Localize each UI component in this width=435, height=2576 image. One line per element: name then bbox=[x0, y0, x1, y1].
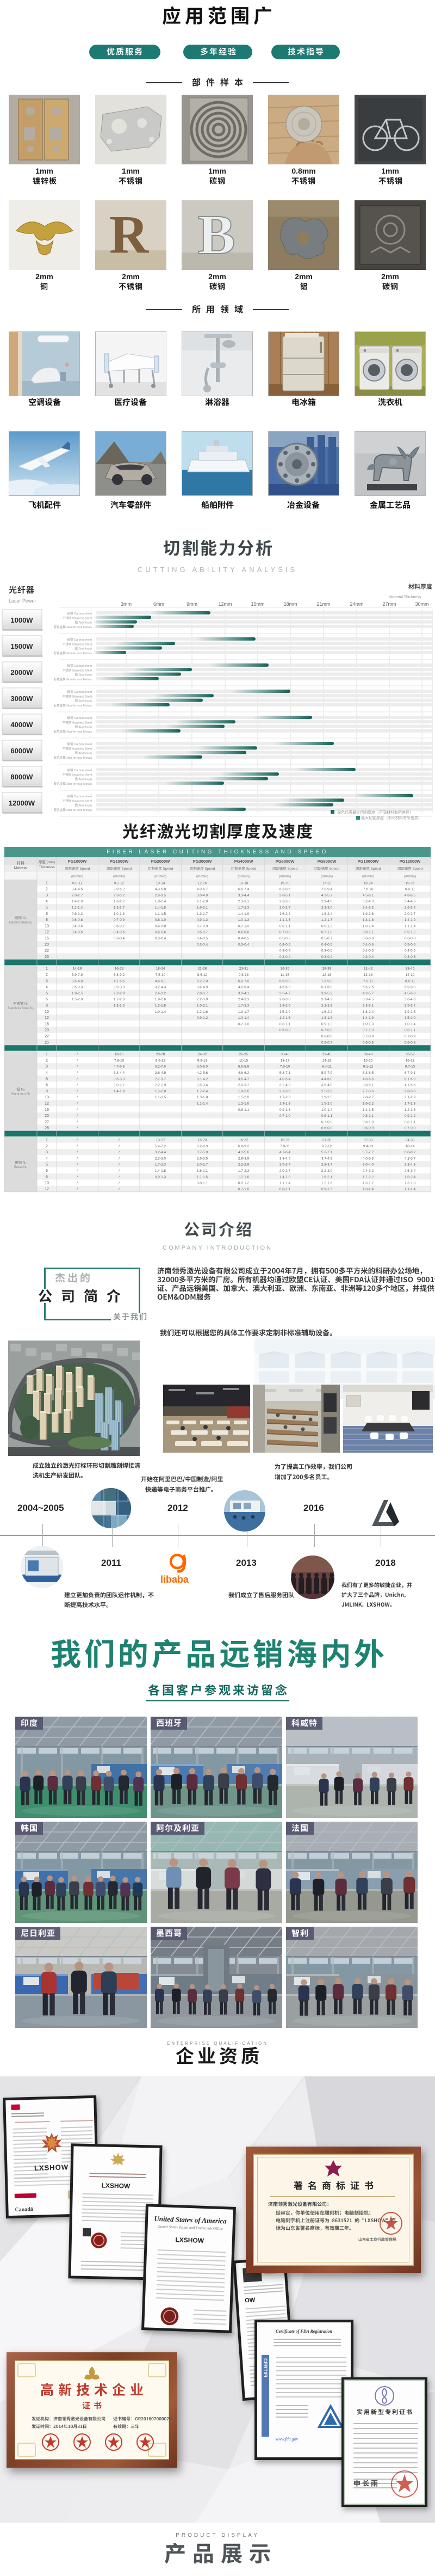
svg-text:PG4000W: PG4000W bbox=[234, 859, 254, 864]
svg-text:2.6-3.4: 2.6-3.4 bbox=[405, 906, 416, 910]
svg-text:1.0-1.3: 1.0-1.3 bbox=[363, 1022, 374, 1026]
svg-text:4.3-5.8: 4.3-5.8 bbox=[155, 888, 166, 892]
svg-text:不锈钢 Stainless Steel: 不锈钢 Stainless Steel bbox=[63, 746, 92, 751]
svg-text:2.9-3.9: 2.9-3.9 bbox=[114, 986, 125, 989]
svg-text:2.3-3.1: 2.3-3.1 bbox=[363, 1004, 374, 1008]
svg-text:2.8-3.7: 2.8-3.7 bbox=[197, 992, 208, 995]
svg-text:不锈钢 Stainless Steel: 不锈钢 Stainless Steel bbox=[63, 720, 92, 724]
svg-text:9.7-13: 9.7-13 bbox=[405, 1065, 415, 1069]
svg-text:8.6-12: 8.6-12 bbox=[156, 1059, 166, 1062]
svg-text:7.6-10: 7.6-10 bbox=[280, 1065, 290, 1069]
svg-text:2.5-3.4: 2.5-3.4 bbox=[405, 1169, 416, 1173]
svg-text:8000W: 8000W bbox=[10, 773, 33, 781]
svg-text:/: / bbox=[119, 1151, 120, 1154]
svg-text:2.1-2.9: 2.1-2.9 bbox=[405, 1096, 416, 1099]
svg-text:不锈钢 N₂: 不锈钢 N₂ bbox=[13, 1001, 29, 1006]
svg-text:2.6-3.5: 2.6-3.5 bbox=[197, 1157, 208, 1160]
svg-text:PG1000W: PG1000W bbox=[68, 859, 88, 864]
svg-text:2: 2 bbox=[46, 1059, 48, 1062]
svg-text:3.1-4.2: 3.1-4.2 bbox=[197, 1077, 208, 1081]
svg-text:2.4-3.2: 2.4-3.2 bbox=[363, 906, 374, 910]
svg-text:1.1-1.4: 1.1-1.4 bbox=[405, 924, 416, 928]
svg-text:2.7-3.6: 2.7-3.6 bbox=[363, 1090, 374, 1093]
svg-text:6.6-8.9: 6.6-8.9 bbox=[238, 1065, 250, 1069]
svg-text:6.0-8.2: 6.0-8.2 bbox=[405, 1151, 416, 1154]
svg-text:1.9-2.6: 1.9-2.6 bbox=[279, 1004, 291, 1008]
svg-text:3: 3 bbox=[46, 1151, 48, 1154]
svg-text:/: / bbox=[77, 1163, 78, 1167]
svg-text:0.3-0.4: 0.3-0.4 bbox=[238, 943, 250, 946]
svg-text:2: 2 bbox=[46, 973, 48, 977]
svg-text:2.2-3.0: 2.2-3.0 bbox=[197, 998, 208, 1001]
svg-text:1.8-2.4: 1.8-2.4 bbox=[363, 1010, 374, 1014]
svg-text:8.0-11: 8.0-11 bbox=[405, 888, 415, 892]
svg-text:1.4-1.9: 1.4-1.9 bbox=[238, 912, 250, 916]
svg-text:2.5-3.4: 2.5-3.4 bbox=[197, 1084, 208, 1087]
svg-text:2.3-3.1: 2.3-3.1 bbox=[238, 900, 250, 903]
svg-text:1.8-2.4: 1.8-2.4 bbox=[321, 912, 333, 916]
svg-text:12: 12 bbox=[45, 1188, 49, 1191]
svg-text:1.5-2.0: 1.5-2.0 bbox=[72, 998, 83, 1001]
svg-text:1.7-2.4: 1.7-2.4 bbox=[197, 1090, 208, 1093]
svg-text:16-22: 16-22 bbox=[239, 1139, 248, 1142]
svg-text:4.7-6.3: 4.7-6.3 bbox=[114, 1065, 125, 1069]
svg-text:不锈钢 Stainless Steel: 不锈钢 Stainless Steel bbox=[63, 772, 92, 777]
svg-text:0.9-1.2: 0.9-1.2 bbox=[72, 912, 83, 916]
svg-text:/: / bbox=[77, 1077, 78, 1081]
svg-text:1.8-2.4: 1.8-2.4 bbox=[405, 1175, 416, 1179]
svg-text:(m/min): (m/min) bbox=[71, 875, 83, 878]
svg-text:0.6-0.8: 0.6-0.8 bbox=[405, 1041, 416, 1044]
svg-text:2.0-2.7: 2.0-2.7 bbox=[197, 1163, 208, 1167]
svg-text:9.9-13: 9.9-13 bbox=[197, 1059, 208, 1062]
svg-text:1.2-1.6: 1.2-1.6 bbox=[405, 1108, 416, 1112]
svg-text:1.9-2.6: 1.9-2.6 bbox=[363, 912, 374, 916]
svg-text:4.5-6.1: 4.5-6.1 bbox=[363, 894, 374, 897]
svg-text:3.4-4.6: 3.4-4.6 bbox=[405, 900, 416, 903]
svg-text:4.5-6.1: 4.5-6.1 bbox=[155, 979, 166, 983]
svg-text:2.0-2.7: 2.0-2.7 bbox=[114, 1084, 125, 1087]
svg-text:(m/min): (m/min) bbox=[238, 875, 250, 878]
svg-text:2000W: 2000W bbox=[10, 668, 33, 677]
svg-text:0.3-0.4: 0.3-0.4 bbox=[197, 943, 208, 946]
svg-text:1000W: 1000W bbox=[10, 616, 33, 624]
svg-text:0.6-0.8: 0.6-0.8 bbox=[279, 1029, 291, 1032]
svg-text:(m/min): (m/min) bbox=[404, 875, 416, 878]
svg-text:0.7-1.0: 0.7-1.0 bbox=[238, 1022, 250, 1026]
svg-text:27mm: 27mm bbox=[382, 601, 396, 607]
svg-text:1.7-2.3: 1.7-2.3 bbox=[155, 1163, 166, 1167]
svg-text:1.1-1.5: 1.1-1.5 bbox=[155, 912, 166, 916]
svg-text:2.5-3.3: 2.5-3.3 bbox=[72, 986, 83, 989]
svg-text:R: R bbox=[109, 204, 150, 265]
svg-text:6.3-8.5: 6.3-8.5 bbox=[363, 1071, 374, 1075]
svg-text:1.4-1.9: 1.4-1.9 bbox=[363, 1016, 374, 1020]
svg-text:1.2-1.6: 1.2-1.6 bbox=[279, 1016, 291, 1020]
svg-text:/: / bbox=[77, 1065, 78, 1069]
svg-text:切割速度 Speed: 切割速度 Speed bbox=[356, 866, 381, 871]
svg-text:2.2-3.0: 2.2-3.0 bbox=[321, 906, 333, 910]
svg-text:2.5-3.4: 2.5-3.4 bbox=[279, 1163, 291, 1167]
svg-text:2: 2 bbox=[46, 1145, 48, 1148]
svg-text:0.6-0.8: 0.6-0.8 bbox=[321, 1127, 333, 1130]
svg-text:/: / bbox=[119, 1169, 120, 1173]
svg-text:3.6-4.8: 3.6-4.8 bbox=[405, 998, 416, 1001]
svg-text:切割速度 Speed: 切割速度 Speed bbox=[314, 866, 340, 871]
svg-text:/: / bbox=[119, 1145, 120, 1148]
svg-text:2.6-3.6: 2.6-3.6 bbox=[279, 900, 291, 903]
svg-text:1: 1 bbox=[46, 1139, 48, 1142]
svg-text:有色金属 Non-ferrous Metals: 有色金属 Non-ferrous Metals bbox=[54, 677, 92, 681]
svg-text:0.8-1.1: 0.8-1.1 bbox=[279, 1188, 291, 1191]
svg-text:1.5-2.1: 1.5-2.1 bbox=[197, 1004, 208, 1008]
svg-text:1.0-1.4: 1.0-1.4 bbox=[321, 1108, 333, 1112]
svg-text:1.2-1.6: 1.2-1.6 bbox=[321, 1182, 333, 1185]
svg-text:1.2-1.6: 1.2-1.6 bbox=[238, 1102, 250, 1106]
svg-text:PG1500W: PG1500W bbox=[110, 859, 129, 864]
svg-text:4.0-5.3: 4.0-5.3 bbox=[363, 1157, 374, 1160]
svg-text:7.8-10: 7.8-10 bbox=[114, 1059, 125, 1062]
svg-text:5.5-7.4: 5.5-7.4 bbox=[238, 888, 250, 892]
svg-text:3.6-4.9: 3.6-4.9 bbox=[155, 1071, 166, 1075]
svg-text:0.5-0.7: 0.5-0.7 bbox=[321, 937, 333, 940]
svg-text:5.2-7.0: 5.2-7.0 bbox=[197, 979, 208, 983]
svg-text:15mm: 15mm bbox=[251, 601, 264, 607]
svg-text:3.2-4.4: 3.2-4.4 bbox=[155, 1151, 166, 1154]
svg-text:5.3-7.1: 5.3-7.1 bbox=[279, 1071, 291, 1075]
svg-text:不锈钢 Stainless Steel: 不锈钢 Stainless Steel bbox=[63, 642, 92, 646]
svg-text:切割速度 Speed: 切割速度 Speed bbox=[65, 866, 90, 871]
svg-text:20: 20 bbox=[45, 1114, 49, 1118]
svg-text:0.9-1.3: 0.9-1.3 bbox=[155, 1175, 166, 1179]
svg-text:不锈钢 Stainless Steel: 不锈钢 Stainless Steel bbox=[63, 798, 92, 803]
svg-text:切割速度 Speed: 切割速度 Speed bbox=[107, 866, 132, 871]
svg-text:有色金属 Non-ferrous Metals: 有色金属 Non-ferrous Metals bbox=[54, 729, 92, 734]
svg-text:6.3-8.5: 6.3-8.5 bbox=[279, 888, 291, 892]
svg-text:8.5-11: 8.5-11 bbox=[405, 979, 415, 983]
svg-text:1: 1 bbox=[46, 1053, 48, 1056]
svg-text:碳钢 Carbon sheet: 碳钢 Carbon sheet bbox=[67, 690, 92, 694]
svg-text:0.6-0.8: 0.6-0.8 bbox=[363, 1041, 374, 1044]
svg-text:/: / bbox=[77, 1090, 78, 1093]
svg-text:3.3-4.5: 3.3-4.5 bbox=[363, 998, 374, 1001]
svg-text:0.9-1.2: 0.9-1.2 bbox=[405, 1114, 416, 1118]
svg-text:(m/min): (m/min) bbox=[154, 875, 166, 878]
svg-text:0.7-1.0: 0.7-1.0 bbox=[238, 924, 250, 928]
svg-text:21mm: 21mm bbox=[316, 601, 330, 607]
svg-text:0.7-0.9: 0.7-0.9 bbox=[279, 931, 291, 935]
svg-text:4.7-6.4: 4.7-6.4 bbox=[279, 1151, 291, 1154]
svg-text:26-35: 26-35 bbox=[239, 1053, 248, 1056]
svg-text:1.0-1.4: 1.0-1.4 bbox=[405, 1022, 416, 1026]
svg-text:4.1-5.5: 4.1-5.5 bbox=[405, 1084, 416, 1087]
svg-text:1: 1 bbox=[46, 881, 48, 885]
svg-text:铝 Aluminum: 铝 Aluminum bbox=[75, 803, 92, 808]
svg-text:24mm: 24mm bbox=[350, 601, 363, 607]
svg-text:18-24: 18-24 bbox=[156, 967, 165, 971]
svg-text:有色金属 Non-ferrous Metals: 有色金属 Non-ferrous Metals bbox=[54, 703, 92, 708]
svg-text:7.3-9.9: 7.3-9.9 bbox=[321, 979, 333, 983]
svg-text:不锈钢 Stainless Steel: 不锈钢 Stainless Steel bbox=[63, 616, 92, 620]
svg-text:3.6-4.9: 3.6-4.9 bbox=[197, 986, 208, 989]
svg-text:2.9-4.0: 2.9-4.0 bbox=[321, 900, 333, 903]
svg-text:4: 4 bbox=[46, 900, 48, 903]
svg-text:9mm: 9mm bbox=[187, 601, 197, 607]
svg-text:3.2-4.3: 3.2-4.3 bbox=[155, 986, 166, 989]
svg-text:铝 Aluminum: 铝 Aluminum bbox=[75, 699, 92, 703]
svg-text:18-24: 18-24 bbox=[364, 881, 373, 885]
svg-text:10-14: 10-14 bbox=[156, 881, 165, 885]
svg-text:0.6-0.8: 0.6-0.8 bbox=[72, 918, 83, 922]
svg-text:36-48: 36-48 bbox=[364, 1053, 373, 1056]
svg-text:7.5-10: 7.5-10 bbox=[363, 888, 374, 892]
svg-text:1.0-1.4: 1.0-1.4 bbox=[155, 1010, 166, 1014]
svg-text:4: 4 bbox=[46, 1071, 48, 1075]
svg-text:1.7-2.3: 1.7-2.3 bbox=[238, 906, 250, 910]
svg-text:6mm: 6mm bbox=[153, 601, 164, 607]
svg-text:0.9-1.2: 0.9-1.2 bbox=[197, 1016, 208, 1020]
svg-text:3.8-5.1: 3.8-5.1 bbox=[363, 1084, 374, 1087]
svg-text:切割速度 Speed: 切割速度 Speed bbox=[231, 866, 257, 871]
svg-text:3.4-4.5: 3.4-4.5 bbox=[72, 888, 83, 892]
svg-text:/: / bbox=[77, 1157, 78, 1160]
svg-text:4.0-5.4: 4.0-5.4 bbox=[279, 1077, 291, 1081]
svg-text:4.2-5.7: 4.2-5.7 bbox=[363, 992, 374, 995]
svg-text:0.3-0.4: 0.3-0.4 bbox=[321, 955, 333, 959]
svg-text:0.4-0.5: 0.4-0.5 bbox=[72, 931, 83, 935]
svg-text:有色金属 Non-ferrous Metals: 有色金属 Non-ferrous Metals bbox=[54, 625, 92, 629]
svg-text:20-28: 20-28 bbox=[156, 1053, 165, 1056]
svg-text:1.5-2.0: 1.5-2.0 bbox=[238, 1096, 250, 1099]
svg-text:0.7-0.9: 0.7-0.9 bbox=[197, 924, 208, 928]
svg-text:19-26: 19-26 bbox=[406, 881, 415, 885]
svg-text:4: 4 bbox=[46, 1157, 48, 1160]
svg-text:有色金属 Non-ferrous Metals: 有色金属 Non-ferrous Metals bbox=[54, 755, 92, 760]
svg-text:0.9-1.2: 0.9-1.2 bbox=[405, 931, 416, 935]
svg-text:0.7-0.9: 0.7-0.9 bbox=[405, 1035, 416, 1038]
svg-text:(m/min): (m/min) bbox=[113, 875, 125, 878]
svg-text:0.8-1.1: 0.8-1.1 bbox=[279, 1022, 291, 1026]
svg-text:1.9-2.6: 1.9-2.6 bbox=[238, 1090, 250, 1093]
svg-text:3.3-4.4: 3.3-4.4 bbox=[114, 1071, 125, 1075]
svg-text:1.9-2.5: 1.9-2.5 bbox=[405, 1010, 416, 1014]
svg-text:8.6-12: 8.6-12 bbox=[197, 973, 208, 977]
svg-text:不锈钢 Stainless Steel: 不锈钢 Stainless Steel bbox=[63, 694, 92, 698]
svg-text:0.6-0.8: 0.6-0.8 bbox=[238, 931, 250, 935]
svg-text:0.7-0.9: 0.7-0.9 bbox=[321, 1120, 333, 1124]
svg-text:1.2-1.7: 1.2-1.7 bbox=[114, 906, 125, 910]
svg-text:0.9-1.3: 0.9-1.3 bbox=[321, 924, 333, 928]
svg-text:16: 16 bbox=[45, 1022, 49, 1026]
svg-text:13-18: 13-18 bbox=[239, 881, 248, 885]
svg-text:0.9-1.3: 0.9-1.3 bbox=[321, 1188, 333, 1191]
svg-text:7.5-10: 7.5-10 bbox=[156, 973, 166, 977]
svg-text:9.2-12: 9.2-12 bbox=[114, 881, 125, 885]
svg-text:1.2-1.6: 1.2-1.6 bbox=[238, 1175, 250, 1179]
svg-text:12mm: 12mm bbox=[218, 601, 232, 607]
svg-text:5.8-7.8: 5.8-7.8 bbox=[238, 979, 250, 983]
svg-text:2.7-3.7: 2.7-3.7 bbox=[155, 1077, 166, 1081]
svg-text:0.7-1.0: 0.7-1.0 bbox=[238, 1188, 250, 1191]
svg-text:铝 N₂: 铝 N₂ bbox=[16, 1086, 25, 1091]
svg-text:12000W: 12000W bbox=[9, 799, 35, 807]
svg-text:3.2-4.3: 3.2-4.3 bbox=[405, 1163, 416, 1167]
svg-text:2.1-2.8: 2.1-2.8 bbox=[197, 900, 208, 903]
svg-text:(m/min): (m/min) bbox=[362, 875, 374, 878]
svg-text:0.8-1.1: 0.8-1.1 bbox=[405, 1120, 416, 1124]
svg-text:3.3-4.5: 3.3-4.5 bbox=[279, 1157, 291, 1160]
svg-text:10: 10 bbox=[45, 1096, 49, 1099]
svg-text:3.5-4.8: 3.5-4.8 bbox=[72, 979, 83, 983]
svg-text:/: / bbox=[77, 1108, 78, 1112]
svg-text:碳钢 Carbon sheet: 碳钢 Carbon sheet bbox=[67, 611, 92, 616]
svg-text:11-15: 11-15 bbox=[281, 973, 290, 977]
svg-text:1.6-2.1: 1.6-2.1 bbox=[197, 906, 208, 910]
svg-text:(m/min): (m/min) bbox=[196, 875, 208, 878]
svg-text:B: B bbox=[197, 204, 235, 266]
svg-text:12: 12 bbox=[45, 931, 49, 935]
svg-text:3mm: 3mm bbox=[121, 601, 132, 607]
svg-text:5.9-8.0: 5.9-8.0 bbox=[405, 986, 416, 989]
svg-text:铝 Aluminum: 铝 Aluminum bbox=[75, 777, 92, 782]
svg-text:21-28: 21-28 bbox=[322, 1139, 332, 1142]
svg-text:1.1-1.5: 1.1-1.5 bbox=[363, 1108, 374, 1112]
svg-text:0.3-0.5: 0.3-0.5 bbox=[321, 949, 333, 953]
svg-text:/: / bbox=[77, 1188, 78, 1191]
svg-text:12: 12 bbox=[45, 1102, 49, 1106]
svg-text:/: / bbox=[77, 1175, 78, 1179]
svg-text:24-32: 24-32 bbox=[406, 1139, 415, 1142]
svg-text:5.1-6.9: 5.1-6.9 bbox=[321, 986, 333, 989]
svg-text:0.4-0.5: 0.4-0.5 bbox=[321, 943, 333, 946]
svg-text:6.6-9.0: 6.6-9.0 bbox=[279, 979, 291, 983]
svg-text:0.8-1.0: 0.8-1.0 bbox=[155, 918, 166, 922]
svg-text:0.4-0.5: 0.4-0.5 bbox=[238, 937, 250, 940]
svg-text:5.5-7.5: 5.5-7.5 bbox=[363, 986, 374, 989]
svg-text:0.3-0.4: 0.3-0.4 bbox=[155, 937, 166, 940]
svg-text:25: 25 bbox=[45, 1041, 49, 1044]
svg-text:1.3-1.8: 1.3-1.8 bbox=[279, 1102, 291, 1106]
svg-text:18mm: 18mm bbox=[283, 601, 297, 607]
svg-text:/: / bbox=[77, 1145, 78, 1148]
svg-text:1: 1 bbox=[46, 967, 48, 971]
svg-text:2.2-3.0: 2.2-3.0 bbox=[321, 1169, 333, 1173]
svg-text:30mm: 30mm bbox=[415, 601, 428, 607]
svg-text:4.8-6.5: 4.8-6.5 bbox=[363, 1077, 374, 1081]
svg-text:0.8-1.0: 0.8-1.0 bbox=[363, 1120, 374, 1124]
svg-text:1.1-1.4: 1.1-1.4 bbox=[197, 1102, 208, 1106]
svg-text:3: 3 bbox=[46, 979, 48, 983]
svg-text:/: / bbox=[77, 1102, 78, 1106]
svg-text:(m/min): (m/min) bbox=[279, 875, 291, 878]
svg-text:6.2-8.3: 6.2-8.3 bbox=[197, 1145, 208, 1148]
svg-text:20: 20 bbox=[45, 943, 49, 946]
svg-text:3.5-4.7: 3.5-4.7 bbox=[279, 992, 291, 995]
svg-text:3.7-5.0: 3.7-5.0 bbox=[197, 1151, 208, 1154]
svg-text:0.4-0.6: 0.4-0.6 bbox=[114, 931, 125, 935]
svg-text:0.8-1.1: 0.8-1.1 bbox=[197, 1182, 208, 1185]
svg-text:2.2-2.9: 2.2-2.9 bbox=[321, 1004, 333, 1008]
svg-text:Carbon steel O₂: Carbon steel O₂ bbox=[9, 921, 33, 925]
svg-text:切割速度 Speed: 切割速度 Speed bbox=[272, 866, 298, 871]
svg-text:25: 25 bbox=[45, 955, 49, 959]
svg-text:0.5-0.7: 0.5-0.7 bbox=[114, 924, 125, 928]
svg-text:0.4-0.5: 0.4-0.5 bbox=[405, 949, 416, 953]
svg-text:4: 4 bbox=[46, 986, 48, 989]
svg-text:8: 8 bbox=[46, 1004, 48, 1008]
svg-text:0.9-1.2: 0.9-1.2 bbox=[197, 918, 208, 922]
svg-text:0.9-1.3: 0.9-1.3 bbox=[279, 1108, 291, 1112]
svg-text:12: 12 bbox=[45, 1016, 49, 1020]
svg-text:0.4-0.6: 0.4-0.6 bbox=[72, 924, 83, 928]
svg-text:2.3-3.0: 2.3-3.0 bbox=[155, 1157, 166, 1160]
svg-text:0.3-0.4: 0.3-0.4 bbox=[279, 955, 291, 959]
svg-text:10: 10 bbox=[45, 1010, 49, 1014]
svg-text:/: / bbox=[77, 1139, 78, 1142]
svg-text:1.7-2.3: 1.7-2.3 bbox=[114, 998, 125, 1001]
svg-text:5.1-6.9: 5.1-6.9 bbox=[405, 1077, 416, 1081]
svg-text:0.5-0.6: 0.5-0.6 bbox=[155, 931, 166, 935]
svg-text:不锈钢 Stainless Steel: 不锈钢 Stainless Steel bbox=[63, 668, 92, 672]
svg-text:6000W: 6000W bbox=[10, 747, 33, 755]
svg-text:21-28: 21-28 bbox=[198, 967, 207, 971]
svg-text:1.0-1.4: 1.0-1.4 bbox=[238, 1016, 250, 1020]
svg-text:5.2-7.0: 5.2-7.0 bbox=[155, 1065, 166, 1069]
svg-text:1.0-1.4: 1.0-1.4 bbox=[363, 1188, 374, 1191]
svg-text:2.0-2.7: 2.0-2.7 bbox=[363, 1096, 374, 1099]
svg-text:9.6-13: 9.6-13 bbox=[239, 973, 249, 977]
svg-text:2.2-2.9: 2.2-2.9 bbox=[238, 1163, 250, 1167]
svg-text:0.6-0.9: 0.6-0.9 bbox=[363, 1127, 374, 1130]
svg-text:1.1-1.5: 1.1-1.5 bbox=[197, 1175, 208, 1179]
svg-text:38-52: 38-52 bbox=[406, 1053, 415, 1056]
svg-text:22: 22 bbox=[45, 949, 49, 953]
svg-text:1.4-1.8: 1.4-1.8 bbox=[155, 906, 166, 910]
svg-text:4.2-5.7: 4.2-5.7 bbox=[321, 894, 333, 897]
svg-text:1.2-1.6: 1.2-1.6 bbox=[114, 1004, 125, 1008]
svg-text:0.3-0.4: 0.3-0.4 bbox=[114, 937, 125, 940]
svg-text:1.9-2.5: 1.9-2.5 bbox=[321, 1096, 333, 1099]
svg-text:1.7-2.3: 1.7-2.3 bbox=[238, 1169, 250, 1173]
svg-text:12-16: 12-16 bbox=[322, 973, 332, 977]
svg-text:4.5-6.0: 4.5-6.0 bbox=[405, 992, 416, 995]
svg-text:1.0-1.4: 1.0-1.4 bbox=[363, 924, 374, 928]
svg-text:/: / bbox=[77, 1084, 78, 1087]
svg-text:/: / bbox=[77, 1053, 78, 1056]
svg-text:1.5-2.0: 1.5-2.0 bbox=[279, 1010, 291, 1014]
svg-text:0.7-1.0: 0.7-1.0 bbox=[363, 1029, 374, 1032]
svg-text:3.0-4.1: 3.0-4.1 bbox=[238, 992, 250, 995]
svg-text:1.1-1.5: 1.1-1.5 bbox=[155, 1096, 166, 1099]
svg-text:2.2-3.0: 2.2-3.0 bbox=[279, 1090, 291, 1093]
svg-text:3000W: 3000W bbox=[10, 694, 33, 703]
svg-text:2.0-2.7: 2.0-2.7 bbox=[72, 894, 83, 897]
svg-text:1.0-1.3: 1.0-1.3 bbox=[238, 918, 250, 922]
svg-text:2.5-3.4: 2.5-3.4 bbox=[405, 1004, 416, 1008]
svg-text:23-31: 23-31 bbox=[239, 967, 248, 971]
svg-text:3.5-4.8: 3.5-4.8 bbox=[321, 1084, 333, 1087]
svg-text:3.7-4.9: 3.7-4.9 bbox=[321, 1157, 333, 1160]
svg-text:5.4-7.2: 5.4-7.2 bbox=[155, 1145, 166, 1148]
svg-text:9.4-13: 9.4-13 bbox=[363, 1145, 374, 1148]
svg-text:15-20: 15-20 bbox=[198, 1139, 207, 1142]
svg-text:4.2-5.7: 4.2-5.7 bbox=[405, 1157, 416, 1160]
svg-text:/: / bbox=[77, 1182, 78, 1185]
svg-text:/: / bbox=[77, 1169, 78, 1173]
svg-text:/: / bbox=[77, 1151, 78, 1154]
svg-text:6: 6 bbox=[46, 1084, 48, 1087]
svg-text:7.9-11: 7.9-11 bbox=[280, 1145, 290, 1148]
